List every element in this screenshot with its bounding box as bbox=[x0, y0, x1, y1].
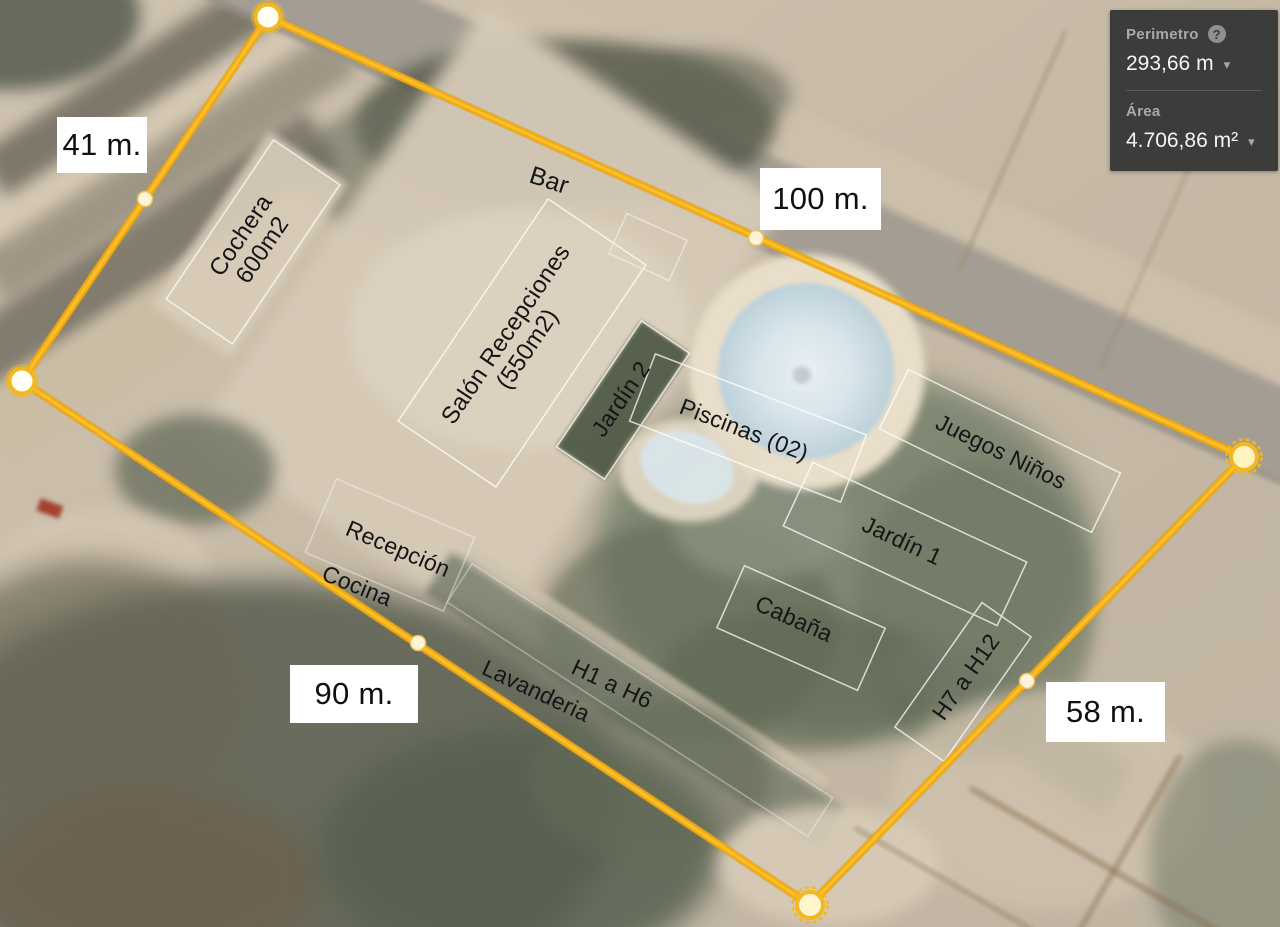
piscinas-outline bbox=[630, 354, 867, 502]
midpoint-handle-east[interactable] bbox=[1020, 674, 1035, 689]
midpoint-handle-west[interactable] bbox=[138, 192, 153, 207]
perimeter-value-dropdown[interactable]: 293,66 m ▾ bbox=[1126, 52, 1262, 76]
edge-length-south: 90 m. bbox=[290, 665, 418, 723]
cochera-outline bbox=[166, 140, 340, 344]
map-viewport: Bar Cochera 600m2 Salón Recepciones (550… bbox=[0, 0, 1280, 927]
salon-outline bbox=[398, 199, 646, 487]
edge-length-east: 58 m. bbox=[1046, 682, 1165, 742]
chevron-down-icon: ▾ bbox=[1224, 58, 1231, 71]
perimeter-label: Perimetro bbox=[1126, 26, 1199, 43]
perimeter-label-row: Perimetro ? bbox=[1126, 25, 1262, 43]
vertex-left[interactable] bbox=[6, 365, 38, 397]
midpoint-handle-north[interactable] bbox=[749, 231, 764, 246]
perimeter-value: 293,66 m bbox=[1126, 52, 1214, 76]
measure-polygon-edges bbox=[22, 17, 1244, 905]
measurement-panel: Perimetro ? 293,66 m ▾ Área 4.706,86 m² … bbox=[1110, 10, 1278, 171]
jardin2-outline bbox=[556, 321, 689, 479]
midpoint-handle-south[interactable] bbox=[411, 636, 426, 651]
jardin1-outline bbox=[783, 462, 1026, 625]
area-label-row: Área bbox=[1126, 103, 1262, 120]
edge-length-north: 100 m. bbox=[760, 168, 881, 230]
h7-h12-outline bbox=[895, 603, 1031, 762]
juegos-ninos-outline bbox=[879, 370, 1120, 533]
edge-length-west: 41 m. bbox=[57, 117, 147, 173]
help-icon[interactable]: ? bbox=[1208, 25, 1226, 43]
chevron-down-icon: ▾ bbox=[1248, 135, 1255, 148]
area-value-dropdown[interactable]: 4.706,86 m² ▾ bbox=[1126, 129, 1262, 153]
area-label: Área bbox=[1126, 103, 1161, 120]
midpoint-handles bbox=[138, 192, 1035, 689]
measure-overlay bbox=[0, 0, 1280, 927]
vertex-top[interactable] bbox=[252, 1, 284, 33]
area-value: 4.706,86 m² bbox=[1126, 129, 1238, 153]
cabana-outline bbox=[717, 566, 885, 691]
panel-divider bbox=[1126, 90, 1262, 91]
